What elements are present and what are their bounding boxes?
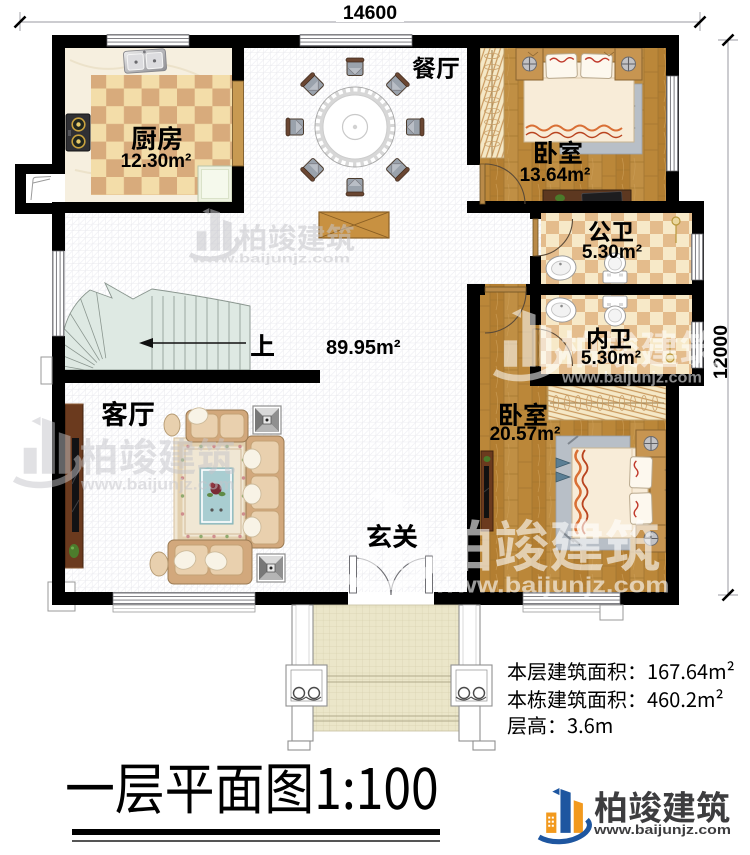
svg-text:www.baijunjz.com: www.baijunjz.com (433, 572, 669, 597)
svg-text:14600: 14600 (343, 2, 397, 24)
svg-text:89.95m²: 89.95m² (326, 337, 401, 359)
svg-text:12000: 12000 (710, 325, 732, 379)
svg-text:5.30m²: 5.30m² (582, 242, 642, 263)
svg-text:12.30m²: 12.30m² (121, 151, 192, 172)
svg-text:13.64m²: 13.64m² (520, 165, 591, 186)
svg-text:5.30m²: 5.30m² (581, 348, 641, 369)
svg-text:www.baijunjz.com: www.baijunjz.com (80, 476, 235, 493)
svg-text:www.baijunjz.com: www.baijunjz.com (593, 822, 731, 837)
svg-text:www.baijunjz.com: www.baijunjz.com (190, 252, 350, 265)
svg-text:www.baijunjz.com: www.baijunjz.com (561, 370, 702, 387)
svg-text:20.57m²: 20.57m² (490, 424, 561, 445)
